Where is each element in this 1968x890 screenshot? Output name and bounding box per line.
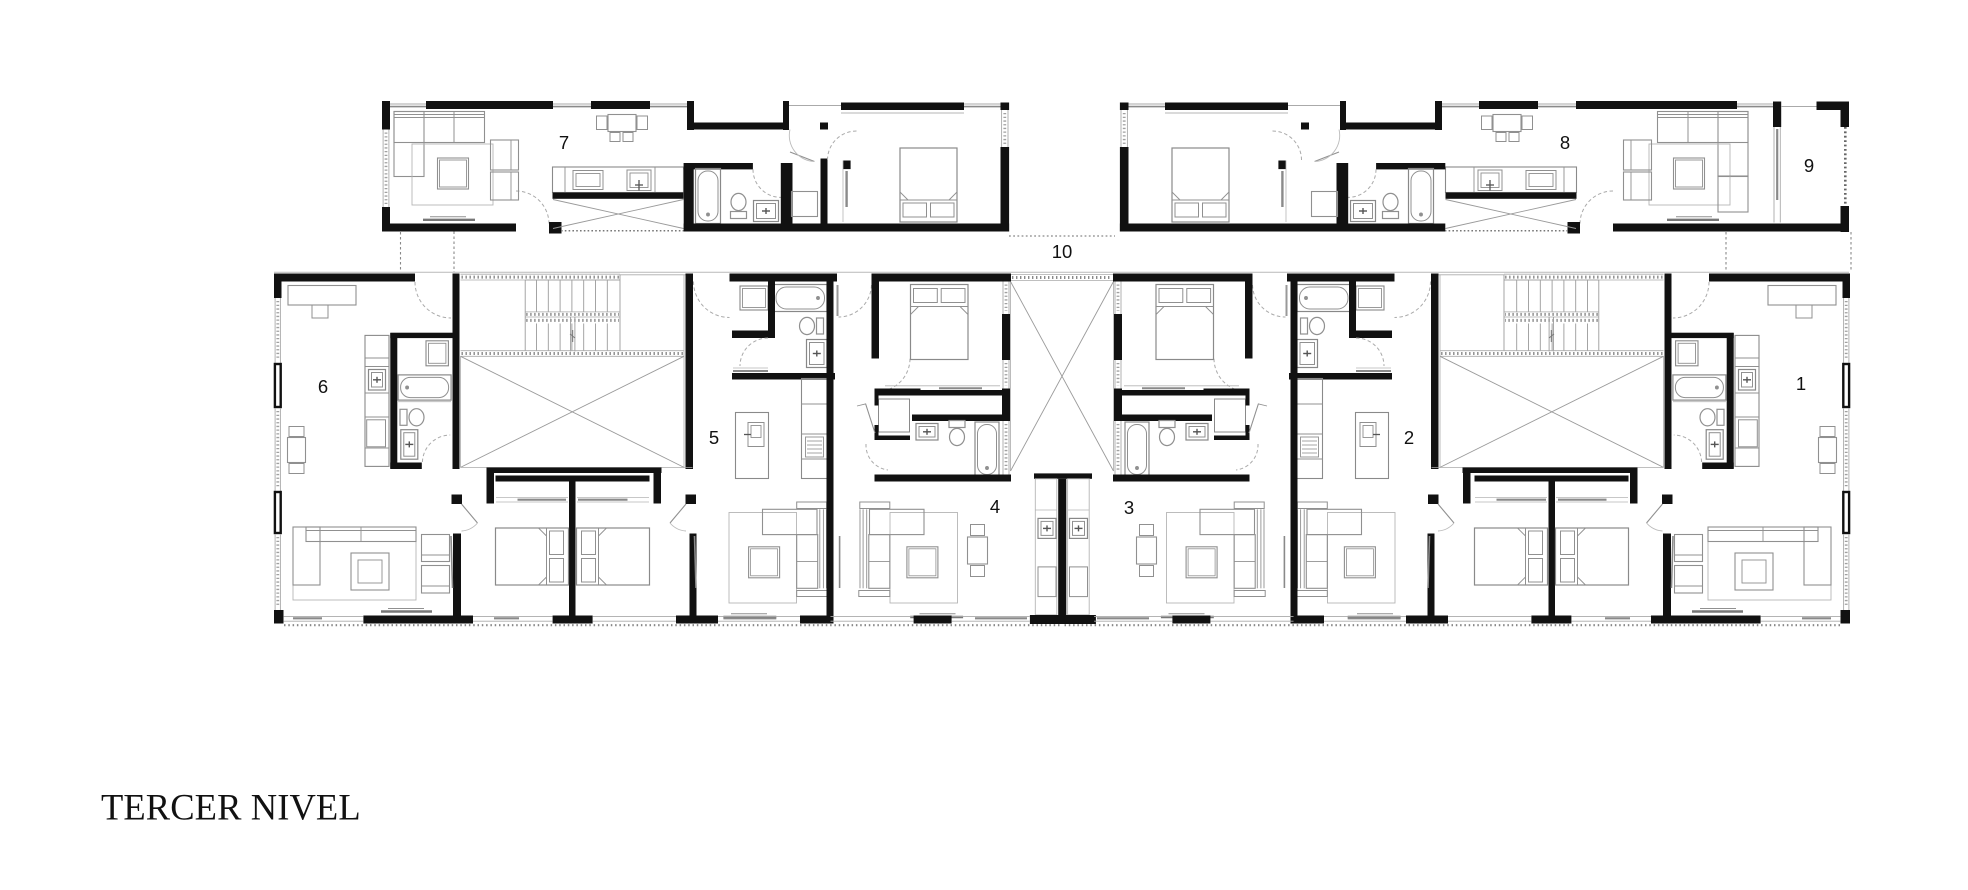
svg-text:9: 9 [1804, 155, 1814, 176]
svg-text:3: 3 [1124, 497, 1134, 518]
svg-text:6: 6 [318, 376, 328, 397]
svg-text:7: 7 [559, 132, 569, 153]
svg-text:TERCER NIVEL: TERCER NIVEL [101, 787, 361, 828]
svg-text:2: 2 [1404, 427, 1414, 448]
svg-text:8: 8 [1560, 132, 1570, 153]
svg-text:5: 5 [709, 427, 719, 448]
svg-text:4: 4 [990, 496, 1000, 517]
svg-text:1: 1 [1796, 373, 1806, 394]
svg-text:10: 10 [1052, 241, 1073, 262]
